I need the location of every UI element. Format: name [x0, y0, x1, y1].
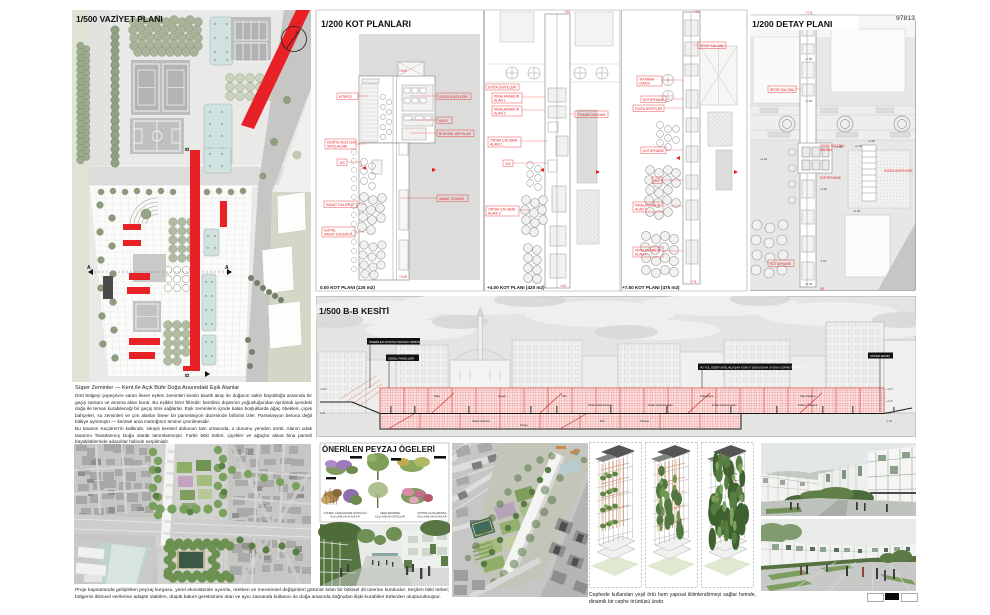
svg-text:KÜTÜPHANE: KÜTÜPHANE	[643, 98, 665, 102]
svg-text:SATIŞ ALANI: SATIŞ ALANI	[327, 145, 347, 149]
svg-text:-1.00: -1.00	[886, 419, 892, 423]
svg-text:+0.00: +0.00	[399, 69, 407, 73]
svg-text:SANAT GALERİSİ: SANAT GALERİSİ	[324, 232, 352, 237]
svg-text:DOĞA ÜNİTELERİ: DOĞA ÜNİTELERİ	[488, 85, 517, 90]
svg-text:Ortak Çalışma Alanı: Ortak Çalışma Alanı	[712, 403, 737, 407]
svg-text:97813: 97813	[896, 15, 915, 22]
svg-text:+7.5: +7.5	[806, 11, 813, 15]
svg-text:+4.50: +4.50	[835, 145, 843, 149]
svg-text:KÜTÜPHANE: KÜTÜPHANE	[643, 149, 665, 153]
svg-text:+7.50: +7.50	[805, 99, 813, 103]
svg-text:ÖNERİLEN DÖNÜŞTÜRÜLEN TRİBÜN: ÖNERİLEN DÖNÜŞTÜRÜLEN TRİBÜN	[369, 339, 420, 344]
svg-text:WC: WC	[506, 162, 512, 166]
svg-text:1/500 B-B KESİTİ: 1/500 B-B KESİTİ	[319, 306, 389, 316]
svg-text:1/200 KOT PLANLARI: 1/200 KOT PLANLARI	[321, 19, 411, 29]
svg-text:KÜTÜPHANE: KÜTÜPHANE	[820, 176, 842, 180]
svg-text:TOHUM DÜKKANI: TOHUM DÜKKANI	[577, 113, 605, 117]
svg-text:WC: WC	[562, 394, 567, 398]
svg-text:+7.5: +7.5	[690, 280, 697, 284]
svg-text:Kütüphane: Kütüphane	[700, 394, 714, 398]
svg-text:SAHASI: SAHASI	[820, 148, 832, 152]
svg-text:A: A	[87, 265, 91, 271]
svg-text:KÜTÜPHANE: KÜTÜPHANE	[770, 262, 792, 266]
svg-text:KAFE: KAFE	[439, 119, 449, 123]
svg-text:+4.00: +4.00	[820, 187, 828, 191]
svg-text:WC: WC	[600, 419, 605, 423]
svg-text:WC: WC	[340, 161, 346, 165]
svg-text:1/200 DETAY PLANI: 1/200 DETAY PLANI	[752, 19, 832, 29]
svg-text:ALANI 1: ALANI 1	[490, 143, 503, 147]
svg-text:Tatlımı Ütüleme: Tatlımı Ütüleme	[798, 403, 818, 407]
svg-text:+2.00: +2.00	[886, 399, 893, 403]
svg-text:Sanat Galerisi: Sanat Galerisi	[472, 419, 490, 423]
svg-text:+4.00: +4.00	[868, 139, 876, 143]
svg-text:+4.00: +4.00	[853, 209, 861, 213]
svg-text:İKİ YOL ÜZERİ SAĞLIKLAŞAN KONU: İKİ YOL ÜZERİ SAĞLIKLAŞAN KONUT DOKUSUNA…	[700, 364, 804, 369]
svg-text:N: N	[296, 30, 299, 35]
svg-text:Fitness: Fitness	[640, 419, 650, 423]
svg-text:0.00: 0.00	[886, 411, 892, 415]
svg-text:KULLANILAN ALANLAR: KULLANILAN ALANLAR	[417, 515, 446, 519]
svg-text:B: B	[185, 147, 191, 151]
svg-text:+4.0: +4.0	[564, 10, 571, 14]
svg-text:Ortak Çalışma Alanı: Ortak Çalışma Alanı	[588, 403, 613, 407]
svg-text:ALAN 4: ALAN 4	[635, 253, 647, 257]
svg-text:KİTAPÇI: KİTAPÇI	[339, 94, 352, 99]
svg-text:+4.00 KOT PLANI (420 m2): +4.00 KOT PLANI (420 m2)	[487, 285, 545, 290]
svg-text:B: B	[185, 373, 191, 377]
svg-text:SÜPER ZEMİN: SÜPER ZEMİN	[870, 353, 890, 358]
svg-text:+4.00: +4.00	[855, 144, 863, 148]
svg-text:Spor Salonu: Spor Salonu	[800, 394, 816, 398]
svg-text:Kafe: Kafe	[434, 394, 440, 398]
svg-text:A: A	[225, 265, 229, 271]
svg-text:+4.0: +4.0	[694, 10, 701, 14]
svg-text:0.00: 0.00	[320, 411, 326, 415]
svg-text:+4.00: +4.00	[886, 387, 893, 391]
svg-text:ÖNERİLEN PEYZAJ ÖGELERİ: ÖNERİLEN PEYZAJ ÖGELERİ	[322, 445, 435, 454]
svg-text:Fuaye: Fuaye	[520, 423, 528, 427]
svg-text:KULLANILAN ALANLAR: KULLANILAN ALANLAR	[330, 515, 359, 519]
svg-text:DOĞA ÜNİTELERİ: DOĞA ÜNİTELERİ	[884, 168, 913, 173]
svg-text:+7.50 KOT PLANI (475 m2): +7.50 KOT PLANI (475 m2)	[622, 285, 680, 290]
svg-text:WC: WC	[655, 179, 661, 183]
svg-text:+0.00: +0.00	[805, 282, 813, 286]
svg-text:SPOR SALONU: SPOR SALONU	[770, 88, 795, 92]
svg-text:BİTKİSEL DEPOLAR: BİTKİSEL DEPOLAR	[439, 131, 471, 136]
svg-text:ALANI 2: ALANI 2	[488, 212, 501, 216]
svg-text:ODASI: ODASI	[639, 82, 650, 86]
svg-text:+0.00: +0.00	[399, 275, 407, 279]
svg-text:0.00 KOT PLANI (125 m2): 0.00 KOT PLANI (125 m2)	[320, 285, 375, 290]
svg-text:+4.00: +4.00	[760, 157, 768, 161]
svg-text:ALAN 2: ALAN 2	[494, 112, 506, 116]
svg-text:ALAN 3: ALAN 3	[635, 208, 647, 212]
svg-text:SANAT SOKAĞI: SANAT SOKAĞI	[439, 196, 464, 201]
svg-text:DOĞA ÜNİTELERİ: DOĞA ÜNİTELERİ	[439, 94, 468, 99]
svg-text:GENEL PANELLERİ: GENEL PANELLERİ	[388, 355, 414, 360]
svg-text:+7.50: +7.50	[805, 57, 813, 61]
svg-text:1/500 VAZİYET PLANI: 1/500 VAZİYET PLANI	[76, 14, 163, 24]
svg-text:Fuaye: Fuaye	[498, 394, 506, 398]
svg-text:Ortak Çalışma Alanı: Ortak Çalışma Alanı	[648, 403, 673, 407]
svg-text:DOĞA ÜNİTELER: DOĞA ÜNİTELER	[635, 106, 663, 111]
svg-text:SPOR SALONU: SPOR SALONU	[700, 44, 725, 48]
svg-text:SANAT GALERİSİ: SANAT GALERİSİ	[326, 202, 354, 207]
svg-text:+4.00: +4.00	[320, 387, 327, 391]
svg-text:ALAN 1: ALAN 1	[494, 99, 506, 103]
svg-text:-4.50: -4.50	[820, 259, 827, 263]
svg-text:+4.0: +4.0	[560, 284, 567, 288]
